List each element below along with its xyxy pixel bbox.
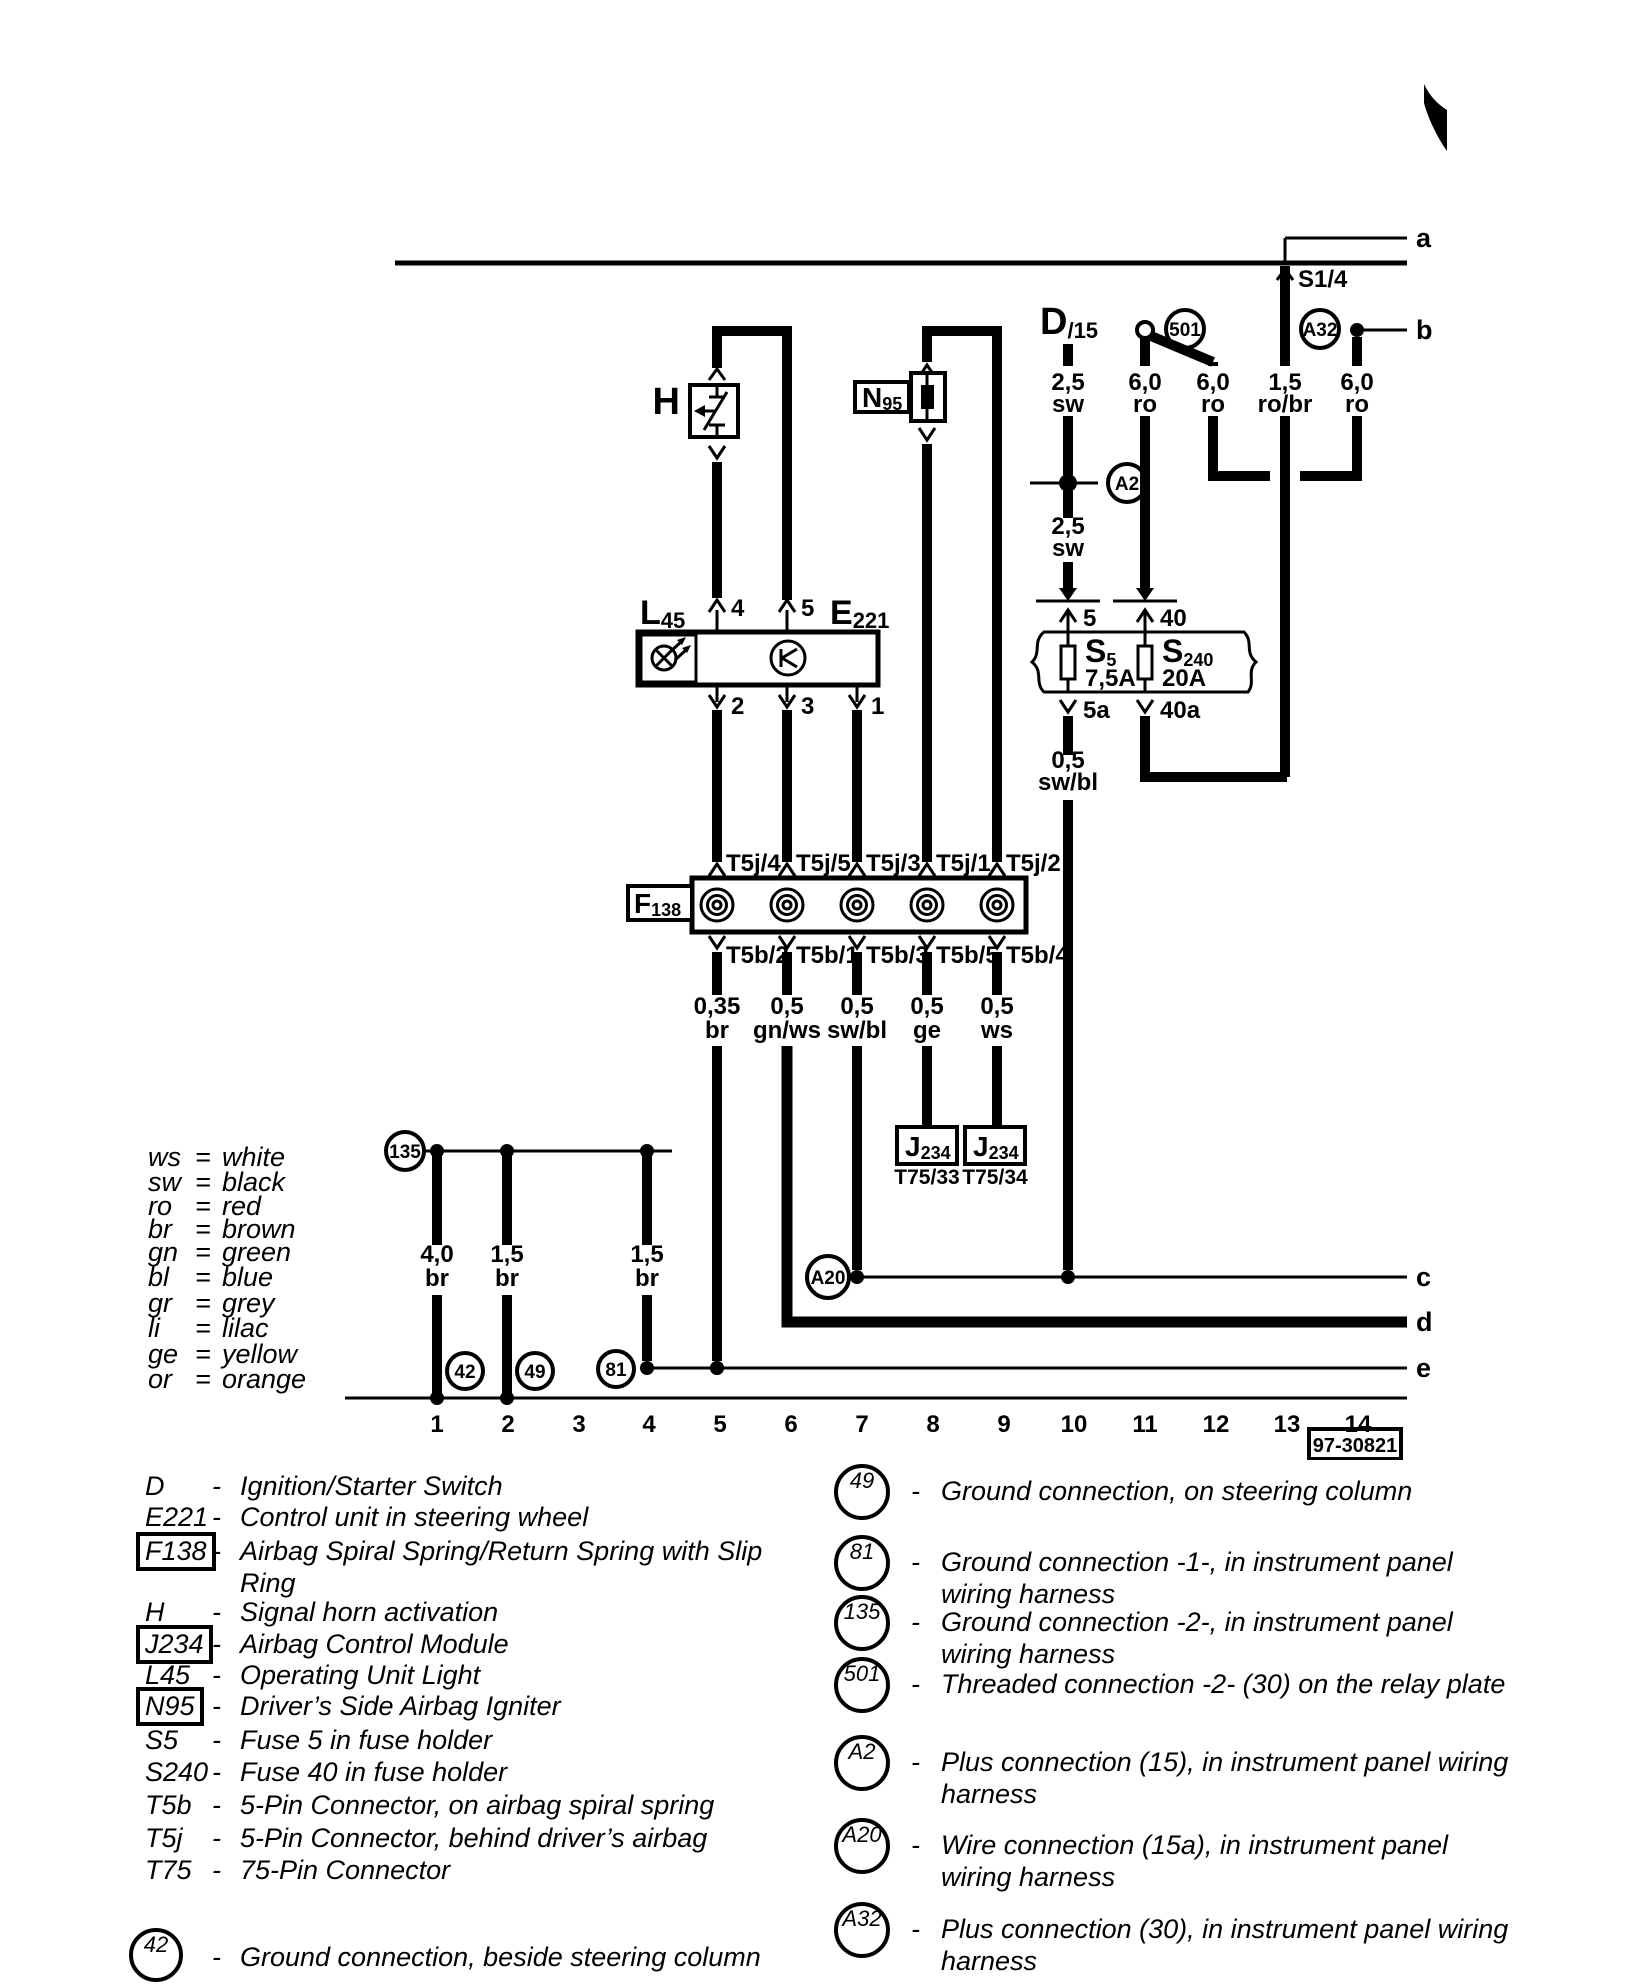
track-12: 12	[1203, 1411, 1230, 1438]
horn-switch-circuit	[690, 331, 787, 600]
component-desc: Ground connection, beside steering colum…	[240, 1942, 761, 1973]
component-desc: Airbag Control Module	[240, 1629, 509, 1660]
label-pin-3: 3	[801, 693, 814, 720]
label-pin-2: 2	[731, 693, 744, 720]
dash: -	[212, 1790, 221, 1821]
gauge-0-color: sw	[1052, 391, 1084, 418]
label-t75-33: T75/33	[894, 1166, 959, 1189]
track-13: 13	[1274, 1411, 1301, 1438]
label-t5j-4: T5j/4	[726, 850, 781, 877]
label-pin-1: 1	[871, 693, 884, 720]
component-desc: 75-Pin Connector	[240, 1855, 450, 1886]
component-desc: 5-Pin Connector, on airbag spiral spring	[240, 1790, 714, 1821]
line-c	[807, 1256, 1407, 1298]
conn-desc: Threaded connection -2- (30) on the rela…	[941, 1669, 1505, 1700]
label-fuse-s240-amp: 20A	[1162, 665, 1206, 692]
track-7: 7	[855, 1411, 868, 1438]
component-desc: Airbag Spiral Spring/Return Spring with …	[240, 1536, 762, 1567]
component-desc: 5-Pin Connector, behind driver’s airbag	[240, 1823, 707, 1854]
circle-label-135: 135	[389, 1142, 421, 1163]
dash: -	[212, 1691, 221, 1722]
conn-desc: wiring harness	[941, 1639, 1115, 1670]
dash: -	[911, 1547, 920, 1578]
page-link-c: c	[1416, 1262, 1431, 1292]
component-desc: Signal horn activation	[240, 1597, 498, 1628]
conn-circle-a20: A20	[834, 1818, 890, 1874]
dash: -	[911, 1669, 920, 1700]
branch-gauge-4-size: 0,5	[980, 993, 1013, 1020]
circle-label-a20: A20	[811, 1268, 846, 1289]
label-t5b-5: T5b/5	[936, 942, 999, 969]
label-t5j-5: T5j/5	[796, 850, 851, 877]
ground-gauge-0-size: 4,0	[420, 1241, 453, 1268]
label-t75-34: T75/34	[962, 1166, 1028, 1189]
dash: -	[212, 1502, 221, 1533]
component-code: S240	[145, 1757, 208, 1788]
wiring-diagram-page: a S1/4 501 A32 b D/15	[0, 0, 1632, 1986]
dash: -	[212, 1629, 221, 1660]
label-t5b-2: T5b/2	[726, 942, 789, 969]
top-power-rail	[395, 238, 1407, 280]
gauge-2-color: ro	[1201, 391, 1225, 418]
ground-gauge-2-color: br	[635, 1265, 659, 1292]
track-5: 5	[713, 1411, 726, 1438]
ground-42-circle: 42	[129, 1928, 183, 1982]
component-desc: Fuse 40 in fuse holder	[240, 1757, 507, 1788]
conn-code: 49	[850, 1468, 874, 1493]
conn-desc: Ground connection -1-, in instrument pan…	[941, 1547, 1453, 1578]
component-desc: Driver’s Side Airbag Igniter	[240, 1691, 561, 1722]
component-code: S5	[145, 1725, 178, 1756]
branch-gauge-4-color: ws	[980, 1017, 1013, 1044]
branch-gauge-3-size: 0,5	[910, 993, 943, 1020]
legend-color: orange	[222, 1364, 306, 1395]
conn-desc: Ground connection, on steering column	[941, 1476, 1412, 1507]
gauge-fuseout-color: sw/bl	[1038, 769, 1098, 796]
conn-circle-a32: A32	[834, 1902, 890, 1958]
component-desc: Control unit in steering wheel	[240, 1502, 588, 1533]
track-3: 3	[572, 1411, 585, 1438]
ground-gauge-0-color: br	[425, 1265, 449, 1292]
label-t5b-1: T5b/1	[796, 942, 859, 969]
track-4: 4	[642, 1411, 656, 1438]
dash: -	[212, 1942, 221, 1973]
dash: -	[212, 1725, 221, 1756]
label-t5b-3: T5b/3	[866, 942, 929, 969]
label-fuse40-pin-out: 40a	[1160, 697, 1201, 724]
branch-gauge-0-color: br	[705, 1017, 729, 1044]
ground-gauge-1-size: 1,5	[490, 1241, 523, 1268]
branch-gauge-1-color: gn/ws	[753, 1017, 821, 1044]
label-fuse40-pin-in: 40	[1160, 605, 1187, 632]
page-link-e: e	[1416, 1353, 1431, 1383]
circle-label-a32: A32	[1303, 320, 1338, 341]
label-pin-5: 5	[801, 595, 814, 622]
conn-desc: wiring harness	[941, 1862, 1115, 1893]
conn-code: A2	[849, 1739, 876, 1764]
conn-desc: harness	[941, 1779, 1037, 1810]
label-t5j-2: T5j/2	[1006, 850, 1061, 877]
component-desc: Ring	[240, 1568, 296, 1599]
dash: -	[212, 1660, 221, 1691]
label-t5j-1: T5j/1	[936, 850, 991, 877]
branch-gauge-1-size: 0,5	[770, 993, 803, 1020]
conn-code: A32	[842, 1906, 881, 1931]
conn-circle-135: 135	[834, 1595, 890, 1651]
label-h: H	[653, 381, 680, 423]
component-desc: Operating Unit Light	[240, 1660, 480, 1691]
gauge-mid-color: sw	[1052, 535, 1084, 562]
diagram-number: 97-30821	[1313, 1435, 1398, 1457]
circle-label-501: 501	[1169, 320, 1201, 341]
component-code: H	[145, 1597, 165, 1628]
conn-code: 501	[844, 1661, 881, 1686]
component-code: E221	[145, 1502, 208, 1533]
dash: -	[212, 1757, 221, 1788]
conn-circle-81: 81	[834, 1535, 890, 1591]
steering-wheel-control-unit	[638, 600, 878, 862]
dash: -	[911, 1476, 920, 1507]
dash: -	[212, 1471, 221, 1502]
gauge-4-color: ro	[1345, 391, 1369, 418]
component-code: T75	[145, 1855, 192, 1886]
component-code: T5j	[145, 1823, 183, 1854]
track-11: 11	[1132, 1411, 1157, 1438]
branch-gauge-3-color: ge	[913, 1017, 941, 1044]
label-t5j-3: T5j/3	[866, 850, 921, 877]
conn-desc: harness	[941, 1946, 1037, 1977]
conn-desc: Plus connection (30), in instrument pane…	[941, 1914, 1508, 1945]
label-l45: L45	[640, 594, 685, 633]
track-9: 9	[997, 1411, 1010, 1438]
circle-label-81: 81	[605, 1360, 627, 1381]
circle-label-49: 49	[524, 1362, 545, 1383]
dash: -	[911, 1830, 920, 1861]
branch-wires	[710, 952, 1407, 1375]
conn-code: 81	[850, 1539, 874, 1564]
page-marker-flag-icon	[1424, 84, 1447, 151]
conn-desc: Ground connection -2-, in instrument pan…	[941, 1607, 1453, 1638]
dash: -	[212, 1597, 221, 1628]
legend-abbr: or	[148, 1364, 172, 1395]
conn-desc: Wire connection (15a), in instrument pan…	[941, 1830, 1448, 1861]
dash: -	[212, 1536, 221, 1567]
component-code: T5b	[145, 1790, 192, 1821]
legend-eq: =	[195, 1364, 211, 1395]
component-code: 42	[144, 1932, 168, 1957]
component-code: N95	[136, 1687, 204, 1726]
component-code: D	[145, 1471, 165, 1502]
branch-gauge-2-size: 0,5	[840, 993, 873, 1020]
conn-circle-49: 49	[834, 1464, 890, 1520]
dash: -	[911, 1747, 920, 1778]
page-link-d: d	[1416, 1307, 1433, 1337]
dash: -	[212, 1823, 221, 1854]
label-fuse5-pin-out: 5a	[1083, 697, 1110, 724]
conn-code: A20	[842, 1822, 881, 1847]
dash: -	[911, 1607, 920, 1638]
branch-gauge-2-color: sw/bl	[827, 1017, 887, 1044]
gauge-1-color: ro	[1133, 391, 1157, 418]
conn-circle-a2: A2	[834, 1735, 890, 1791]
track-8: 8	[926, 1411, 939, 1438]
page-link-a: a	[1416, 223, 1432, 253]
conn-desc: wiring harness	[941, 1579, 1115, 1610]
label-pin-4: 4	[731, 595, 745, 622]
label-fuse5-pin-in: 5	[1083, 605, 1096, 632]
ground-gauge-1-color: br	[495, 1265, 519, 1292]
label-t5b-4: T5b/4	[1006, 942, 1069, 969]
track-14: 14	[1345, 1411, 1372, 1438]
dash: -	[212, 1855, 221, 1886]
track-10: 10	[1061, 1411, 1088, 1438]
label-d15: D/15	[1040, 301, 1098, 343]
label-e221: E221	[830, 594, 889, 633]
track-6: 6	[784, 1411, 797, 1438]
dash: -	[911, 1914, 920, 1945]
track-2: 2	[501, 1411, 514, 1438]
component-desc: Ignition/Starter Switch	[240, 1471, 503, 1502]
branch-gauge-0-size: 0,35	[694, 993, 741, 1020]
ground-gauge-2-size: 1,5	[630, 1241, 663, 1268]
gauge-3-color: ro/br	[1258, 391, 1313, 418]
conn-circle-501: 501	[834, 1657, 890, 1713]
track-1: 1	[430, 1411, 443, 1438]
component-code: F138	[136, 1532, 216, 1571]
label-fuse-s5-amp: 7,5A	[1085, 665, 1136, 692]
page-link-b: b	[1416, 315, 1433, 345]
component-desc: Fuse 5 in fuse holder	[240, 1725, 492, 1756]
circle-label-42: 42	[454, 1362, 475, 1383]
conn-desc: Plus connection (15), in instrument pane…	[941, 1747, 1508, 1778]
component-code: J234	[136, 1625, 213, 1664]
circle-label-a2: A2	[1115, 474, 1139, 495]
label-s1-4: S1/4	[1298, 266, 1348, 293]
conn-code: 135	[844, 1599, 881, 1624]
